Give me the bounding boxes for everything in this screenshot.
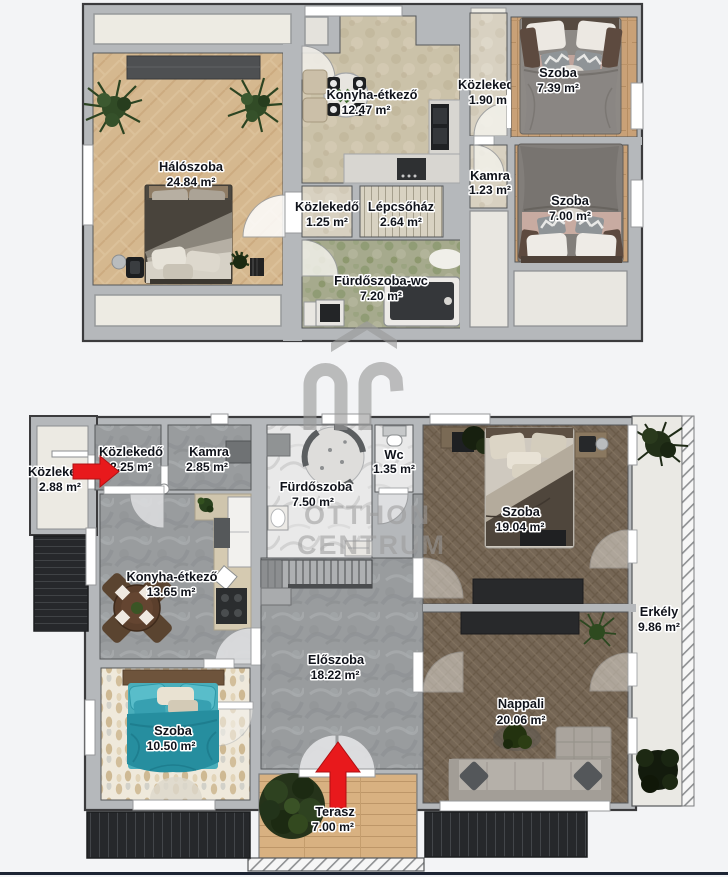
svg-text:Wc: Wc [384, 447, 403, 462]
svg-text:Kamra: Kamra [189, 444, 230, 459]
svg-text:1.90 m²: 1.90 m² [469, 93, 511, 107]
svg-text:Szoba: Szoba [551, 193, 590, 208]
svg-text:Erkély: Erkély [640, 604, 679, 619]
svg-text:Terasz: Terasz [315, 804, 355, 819]
svg-text:7.20 m²: 7.20 m² [360, 289, 402, 303]
svg-text:Közlekedő: Közlekedő [295, 199, 359, 214]
svg-text:2.88 m²: 2.88 m² [39, 480, 81, 494]
svg-text:9.86 m²: 9.86 m² [638, 620, 680, 634]
svg-text:2.64 m²: 2.64 m² [380, 215, 422, 229]
svg-text:Hálószoba: Hálószoba [159, 159, 224, 174]
svg-text:Lépcsőház: Lépcsőház [368, 199, 434, 214]
svg-text:7.00 m²: 7.00 m² [312, 820, 354, 834]
svg-text:Nappali: Nappali [498, 696, 544, 711]
svg-text:1.35 m²: 1.35 m² [373, 462, 415, 476]
svg-text:Szoba: Szoba [154, 723, 193, 738]
svg-text:24.84 m²: 24.84 m² [167, 175, 216, 189]
svg-text:1.25 m²: 1.25 m² [306, 215, 348, 229]
svg-text:OTTHON: OTTHON [304, 500, 431, 530]
svg-text:20.06 m²: 20.06 m² [497, 713, 546, 727]
svg-text:Konyha-étkező: Konyha-étkező [326, 87, 417, 102]
svg-text:10.50 m²: 10.50 m² [147, 739, 196, 753]
svg-text:Fürdőszoba: Fürdőszoba [280, 479, 353, 494]
svg-text:CENTRUM: CENTRUM [297, 530, 446, 560]
svg-text:12.47 m²: 12.47 m² [342, 103, 391, 117]
svg-text:Kamra: Kamra [470, 168, 511, 183]
svg-text:2.85 m²: 2.85 m² [186, 460, 228, 474]
svg-text:1.23 m²: 1.23 m² [469, 183, 511, 197]
svg-text:7.00 m²: 7.00 m² [549, 209, 591, 223]
svg-text:Szoba: Szoba [539, 65, 578, 80]
svg-text:Fürdőszoba-wc: Fürdőszoba-wc [334, 273, 428, 288]
svg-text:7.39 m²: 7.39 m² [537, 81, 579, 95]
svg-text:19.04 m²: 19.04 m² [496, 520, 545, 534]
svg-text:Közlekedő: Közlekedő [99, 444, 163, 459]
svg-text:18.22 m²: 18.22 m² [311, 668, 360, 682]
svg-text:Szoba: Szoba [502, 504, 541, 519]
svg-text:Konyha-étkező: Konyha-étkező [126, 569, 217, 584]
svg-text:13.65 m²: 13.65 m² [147, 585, 196, 599]
svg-text:Előszoba: Előszoba [308, 652, 365, 667]
